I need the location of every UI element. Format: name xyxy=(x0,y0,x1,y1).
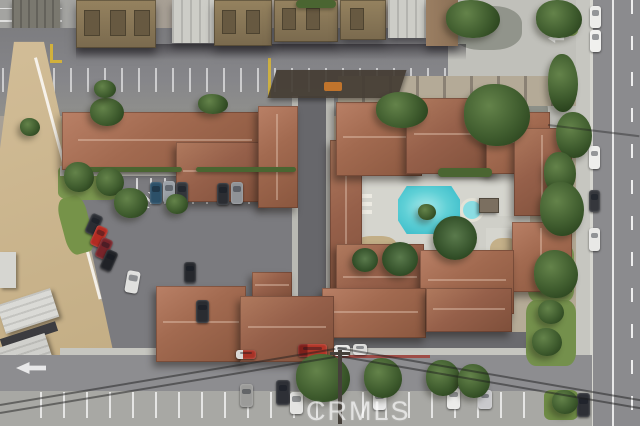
stucco-building xyxy=(426,0,458,46)
condo-roof-G1 xyxy=(322,288,426,338)
condo-roof-east1 xyxy=(514,128,572,216)
roof-gable xyxy=(282,8,296,30)
roof-gable xyxy=(84,10,100,36)
utility-pole-crossarm xyxy=(330,352,350,355)
condo-roof-A-wing xyxy=(176,142,268,202)
condo-roof-F-wing xyxy=(252,272,292,298)
roof-gable xyxy=(222,10,236,34)
pool-cabana xyxy=(479,198,499,213)
flat-roof-building xyxy=(172,0,214,43)
edge-grass2 xyxy=(526,300,576,366)
aerial-photo: CRMLS xyxy=(0,0,640,426)
parkway-grass-top xyxy=(550,14,578,36)
roof-gable xyxy=(134,10,150,36)
right-street-dashed-line xyxy=(631,0,633,426)
flat-roof-building xyxy=(388,0,426,38)
condo-roof-F1 xyxy=(156,286,246,362)
roof-gable xyxy=(110,10,126,36)
no-parking-hatch xyxy=(130,192,150,208)
yellow-curb-mark2 xyxy=(50,60,62,63)
orange-equipment xyxy=(324,82,342,91)
swimming-pool xyxy=(398,186,460,234)
roof-gable xyxy=(306,8,320,30)
roof-gable xyxy=(350,8,364,30)
lounge-chair2 xyxy=(362,202,372,206)
roof-gable xyxy=(246,10,260,34)
condo-roof-B xyxy=(258,106,298,208)
white-building-left xyxy=(0,252,16,288)
condo-roof-east2 xyxy=(512,222,572,292)
right-street-fog-line xyxy=(612,0,614,426)
condo-roof-G2 xyxy=(426,288,512,332)
lounge-chair3 xyxy=(362,210,372,214)
lounge-chair xyxy=(362,194,372,198)
crmls-watermark: CRMLS xyxy=(306,396,411,426)
